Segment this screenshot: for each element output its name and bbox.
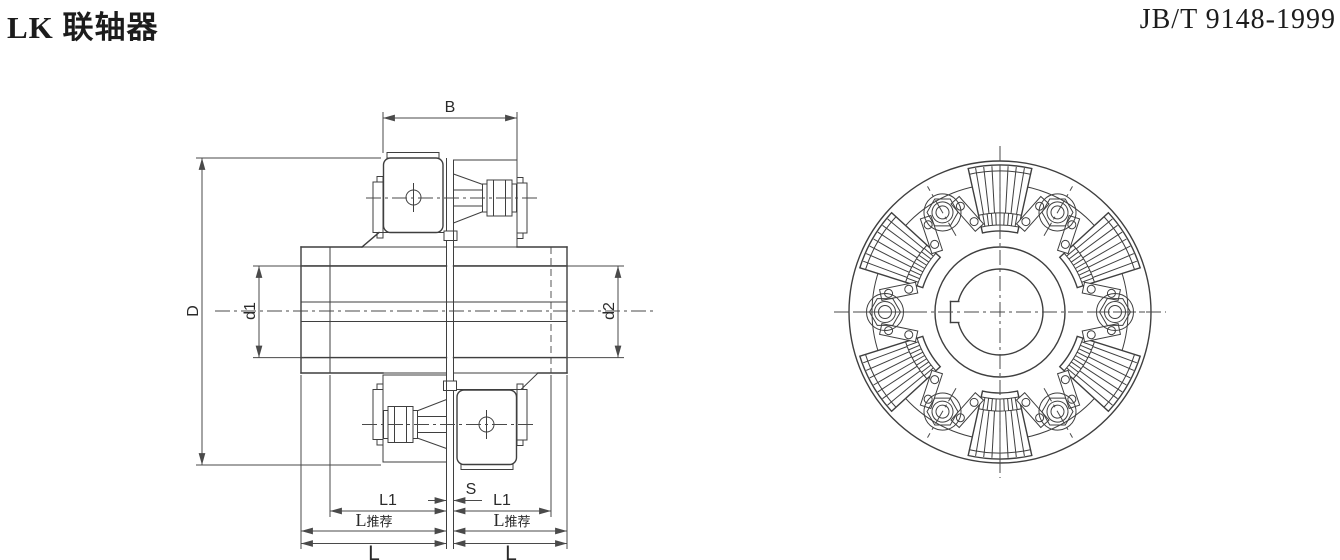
label-total-length-right: L	[505, 542, 517, 560]
label-hub-length-right: L1	[493, 492, 511, 509]
dimension-l-rec-left: L推荐	[301, 510, 447, 531]
end-view	[834, 146, 1166, 478]
label-l-rec-suffix-right: 推荐	[504, 514, 530, 529]
section-view: B D d1 d2	[185, 99, 655, 560]
label-l-rec-left: L	[355, 510, 366, 530]
dimension-l-rec-right: L推荐	[454, 510, 568, 531]
dimension-l-right: L	[454, 542, 568, 560]
label-hub-length-left: L1	[379, 492, 397, 509]
spring-segment-330	[848, 309, 956, 428]
spring-segment-210	[1044, 309, 1152, 428]
dimension-l-left: L	[301, 542, 447, 560]
svg-text:L推荐: L推荐	[355, 510, 392, 530]
flange-bolt-top	[454, 160, 528, 247]
label-gap: S	[466, 481, 477, 498]
label-total-length-left: L	[368, 542, 380, 560]
dimension-s: S	[428, 481, 482, 501]
label-l-rec-suffix-left: 推荐	[366, 514, 392, 529]
spring-pack-top	[373, 153, 443, 239]
technical-drawing: B D d1 d2	[0, 0, 1340, 560]
dimension-d2: d2	[566, 266, 624, 358]
svg-text:L推荐: L推荐	[493, 510, 530, 530]
flange-bolt-bottom	[373, 375, 447, 462]
drawing-sheet: LK 联轴器 JB/T 9148-1999	[0, 0, 1340, 560]
label-b: B	[445, 99, 456, 116]
spring-segment-30	[848, 196, 956, 315]
left-hub-section	[301, 233, 447, 374]
label-bore-left: d1	[242, 302, 259, 320]
spring-pack-bottom	[457, 384, 527, 470]
bore-lines	[301, 266, 567, 358]
dimension-d1: d1	[242, 266, 304, 358]
dimension-l1-left: L1	[330, 492, 447, 511]
right-hub-section	[454, 247, 568, 390]
label-l-rec-right: L	[493, 510, 504, 530]
spring-segment-150	[1044, 196, 1152, 315]
label-bore-right: d2	[601, 302, 618, 320]
label-outer-diameter: D	[185, 305, 202, 317]
